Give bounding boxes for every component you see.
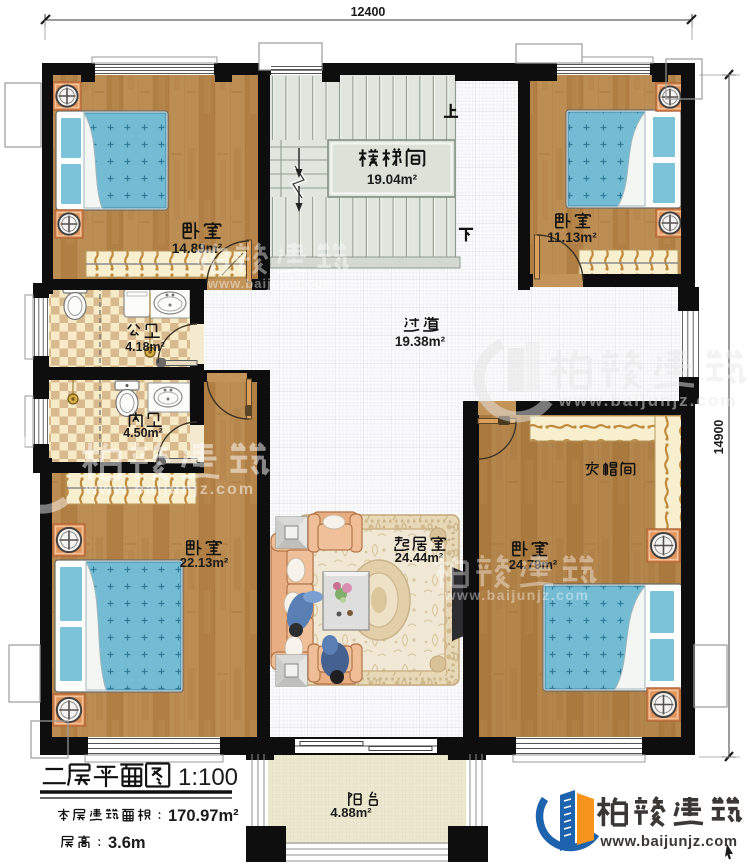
svg-text:1:100: 1:100 bbox=[178, 764, 238, 791]
svg-text:3.6m: 3.6m bbox=[108, 834, 146, 852]
svg-text:www.baijunjz.com: www.baijunjz.com bbox=[444, 587, 590, 603]
svg-text:12400: 12400 bbox=[351, 5, 386, 19]
svg-text:22.13m²: 22.13m² bbox=[180, 555, 229, 570]
svg-text:19.38m²: 19.38m² bbox=[395, 334, 446, 349]
svg-text:4.18m²: 4.18m² bbox=[125, 340, 165, 354]
svg-text:www.baijunjz.com: www.baijunjz.com bbox=[558, 391, 738, 410]
svg-text:4.50m²: 4.50m² bbox=[123, 426, 163, 440]
svg-text:4.88m²: 4.88m² bbox=[330, 805, 372, 820]
svg-text:www.baijunjz.com: www.baijunjz.com bbox=[84, 481, 255, 498]
svg-text:170.97m²: 170.97m² bbox=[168, 807, 239, 825]
svg-text:19.04m²: 19.04m² bbox=[367, 172, 418, 187]
svg-text:www.baijunjz.com: www.baijunjz.com bbox=[599, 834, 737, 850]
svg-text:www.baijunjz.com: www.baijunjz.com bbox=[207, 276, 336, 291]
svg-text:11.13m²: 11.13m² bbox=[547, 230, 597, 245]
svg-text:14900: 14900 bbox=[712, 420, 726, 455]
